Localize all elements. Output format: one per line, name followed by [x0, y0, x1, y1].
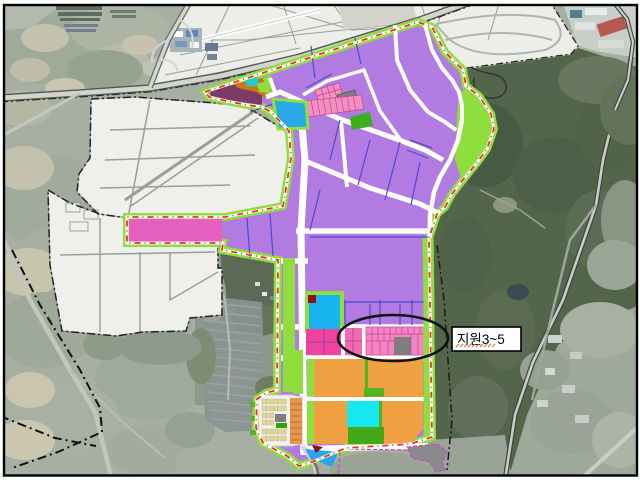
- svg-text:지원3~5: 지원3~5: [457, 332, 505, 347]
